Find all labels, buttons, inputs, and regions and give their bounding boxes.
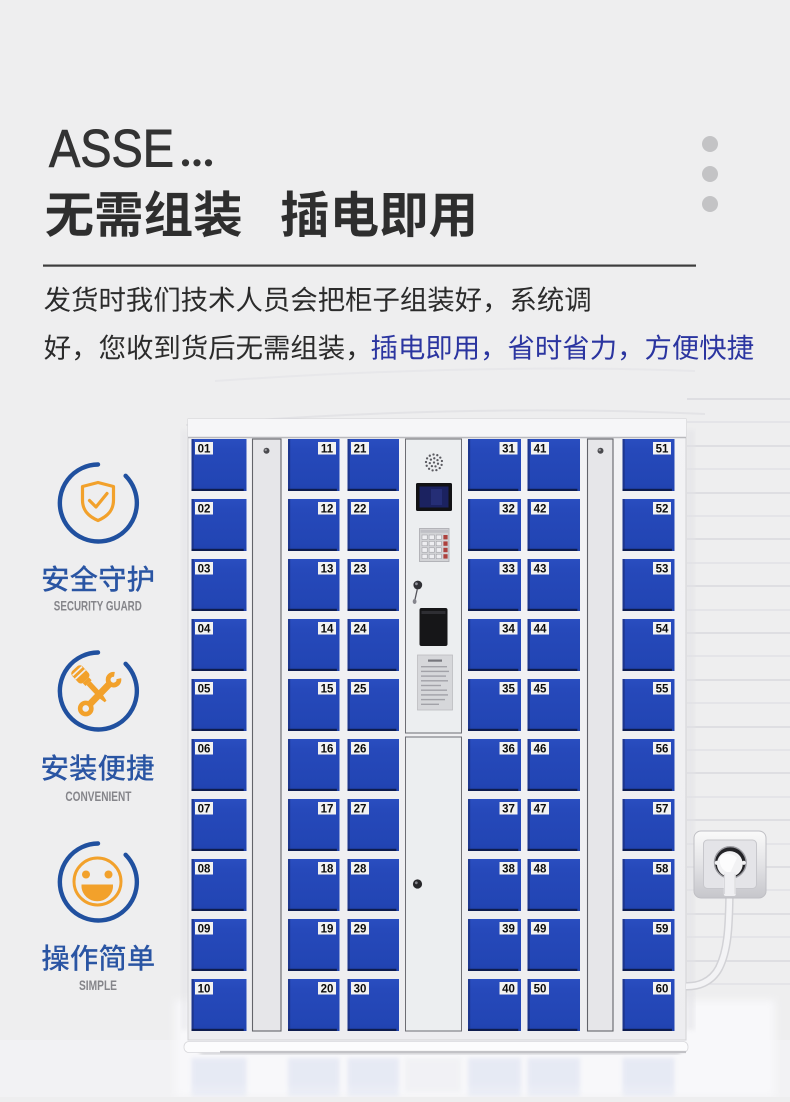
svg-text:25: 25 bbox=[354, 683, 367, 695]
svg-text:ASSE: ASSE bbox=[49, 120, 174, 179]
svg-text:09: 09 bbox=[198, 923, 211, 935]
svg-text:10: 10 bbox=[198, 983, 211, 995]
svg-text:32: 32 bbox=[502, 503, 515, 515]
svg-text:17: 17 bbox=[321, 803, 334, 815]
svg-text:43: 43 bbox=[534, 563, 547, 575]
svg-text:59: 59 bbox=[656, 923, 669, 935]
svg-text:13: 13 bbox=[321, 563, 334, 575]
svg-text:34: 34 bbox=[502, 623, 515, 635]
svg-text:45: 45 bbox=[534, 683, 547, 695]
svg-text:05: 05 bbox=[198, 683, 211, 695]
svg-text:30: 30 bbox=[354, 983, 367, 995]
svg-text:53: 53 bbox=[656, 563, 669, 575]
svg-text:18: 18 bbox=[321, 863, 334, 875]
svg-text:48: 48 bbox=[534, 863, 547, 875]
svg-text:26: 26 bbox=[354, 743, 367, 755]
svg-text:52: 52 bbox=[656, 503, 669, 515]
svg-text:20: 20 bbox=[321, 983, 334, 995]
svg-text:31: 31 bbox=[502, 443, 515, 455]
svg-text:19: 19 bbox=[321, 923, 334, 935]
svg-text:47: 47 bbox=[534, 803, 547, 815]
svg-text:12: 12 bbox=[321, 503, 334, 515]
svg-text:39: 39 bbox=[502, 923, 515, 935]
svg-text:60: 60 bbox=[656, 983, 669, 995]
svg-text:07: 07 bbox=[198, 803, 211, 815]
svg-text:02: 02 bbox=[198, 503, 211, 515]
svg-text:SECURITY GUARD: SECURITY GUARD bbox=[54, 598, 142, 614]
svg-text:44: 44 bbox=[534, 623, 547, 635]
svg-text:04: 04 bbox=[198, 623, 211, 635]
svg-text:CONVENIENT: CONVENIENT bbox=[65, 788, 131, 804]
svg-text:06: 06 bbox=[198, 743, 211, 755]
svg-text:41: 41 bbox=[534, 443, 547, 455]
svg-text:57: 57 bbox=[656, 803, 669, 815]
svg-text:15: 15 bbox=[321, 683, 334, 695]
svg-text:35: 35 bbox=[502, 683, 515, 695]
svg-text:24: 24 bbox=[354, 623, 367, 635]
svg-text:42: 42 bbox=[534, 503, 547, 515]
svg-text:36: 36 bbox=[502, 743, 515, 755]
svg-text:03: 03 bbox=[198, 563, 211, 575]
svg-text:21: 21 bbox=[354, 443, 367, 455]
svg-text:54: 54 bbox=[656, 623, 669, 635]
svg-text:56: 56 bbox=[656, 743, 669, 755]
svg-text:49: 49 bbox=[534, 923, 547, 935]
svg-text:22: 22 bbox=[354, 503, 367, 515]
svg-text:29: 29 bbox=[354, 923, 367, 935]
svg-text:08: 08 bbox=[198, 863, 211, 875]
svg-text:37: 37 bbox=[502, 803, 515, 815]
svg-text:46: 46 bbox=[534, 743, 547, 755]
svg-text:27: 27 bbox=[354, 803, 367, 815]
svg-text:51: 51 bbox=[656, 443, 669, 455]
svg-text:50: 50 bbox=[534, 983, 547, 995]
svg-text:23: 23 bbox=[354, 563, 367, 575]
svg-text:58: 58 bbox=[656, 863, 669, 875]
svg-text:28: 28 bbox=[354, 863, 367, 875]
svg-text:55: 55 bbox=[656, 683, 669, 695]
svg-text:38: 38 bbox=[502, 863, 515, 875]
svg-text:11: 11 bbox=[321, 443, 334, 455]
svg-text:16: 16 bbox=[321, 743, 334, 755]
svg-text:SIMPLE: SIMPLE bbox=[79, 977, 117, 993]
svg-text:40: 40 bbox=[502, 983, 515, 995]
svg-text:01: 01 bbox=[198, 443, 211, 455]
svg-text:14: 14 bbox=[321, 623, 334, 635]
svg-text:33: 33 bbox=[502, 563, 515, 575]
